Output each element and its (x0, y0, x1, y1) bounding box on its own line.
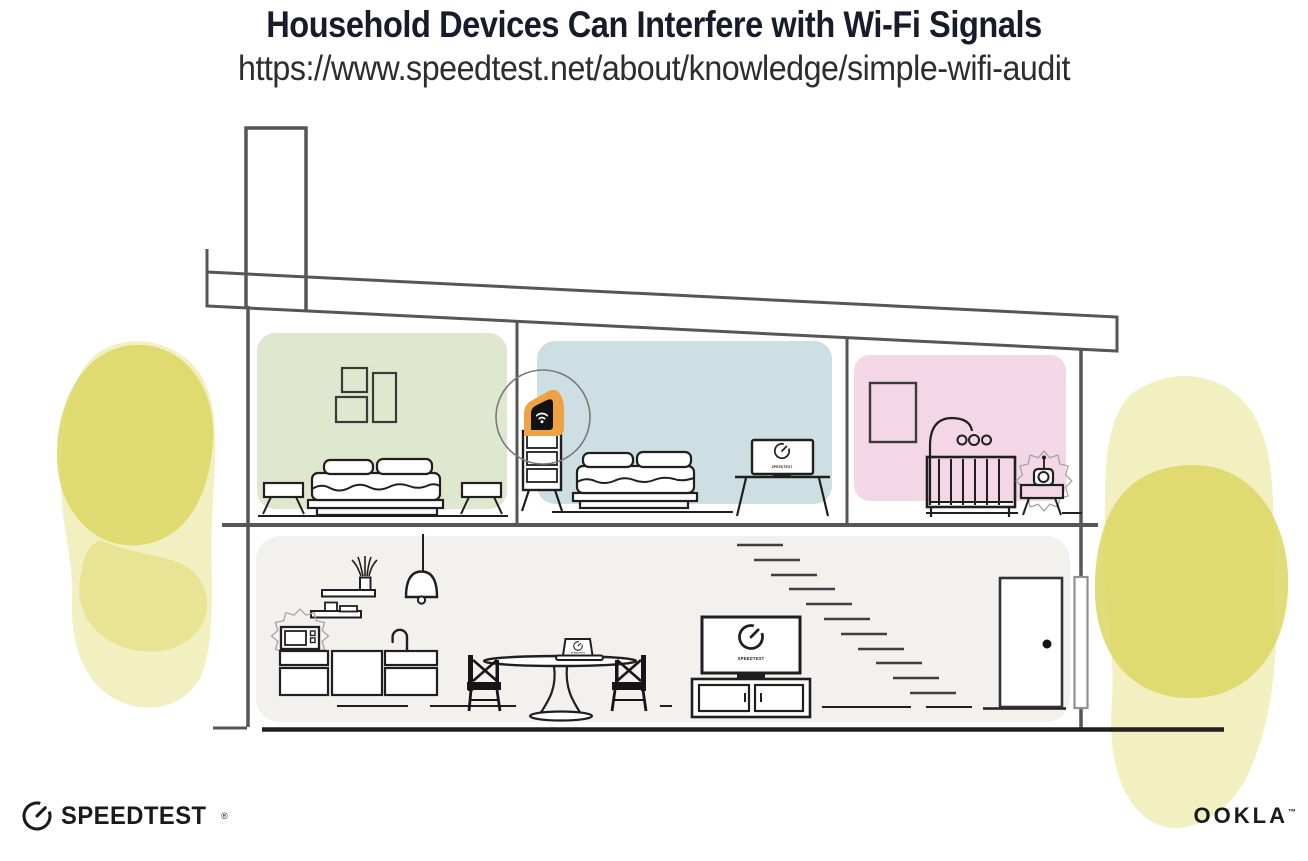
tree-right (1095, 376, 1288, 828)
speedtest-trademark: ® (221, 811, 228, 821)
bowl (340, 606, 357, 612)
ookla-logo: OOKLA™ (1194, 803, 1296, 829)
chimney (246, 128, 306, 310)
speedtest-logo: SPEEDTEST® (20, 799, 228, 833)
tree-left (57, 341, 215, 707)
gauge-icon (20, 799, 54, 833)
tv-cabinet (692, 679, 810, 717)
speedtest-wordmark: SPEEDTEST (61, 802, 206, 831)
living-room-tv: SPEEDTEST (702, 617, 800, 678)
microwave (281, 627, 319, 649)
cup (325, 603, 337, 612)
front-door (1000, 578, 1062, 707)
ookla-trademark: ™ (1288, 808, 1296, 817)
door-knob (1043, 640, 1052, 649)
infographic-page: Household Devices Can Interfere with Wi-… (0, 0, 1308, 861)
laptop-label: SPEEDTEST (571, 653, 586, 655)
ookla-wordmark: OOKLA (1194, 803, 1288, 828)
monitor-label: SPEEDTEST (772, 465, 793, 469)
house-illustration: SPEEDTEST (0, 0, 1308, 861)
tv-label: SPEEDTEST (738, 656, 765, 661)
downspout (1075, 577, 1088, 708)
bedroom-monitor: SPEEDTEST (752, 440, 813, 477)
